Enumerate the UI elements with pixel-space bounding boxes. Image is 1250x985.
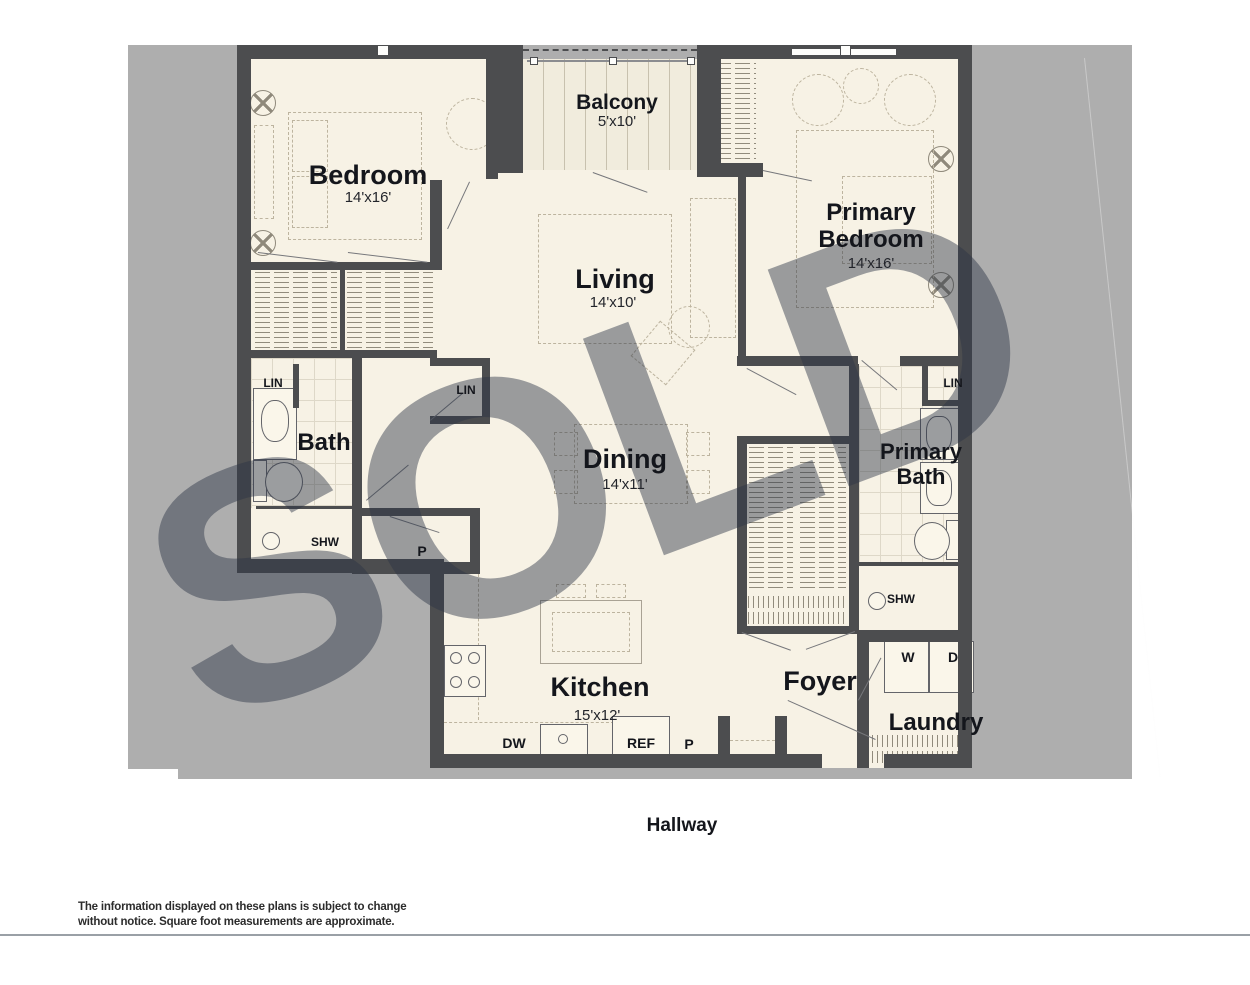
label-pantry: P xyxy=(417,544,426,560)
wall xyxy=(718,716,730,758)
wall xyxy=(237,45,503,59)
foyer-closet-shelf xyxy=(748,592,847,624)
floor-plan-page: SOLD Bedroom 14'x16' Balcony 5'x10' Livi… xyxy=(0,0,1250,985)
room-dims-bedroom: 14'x16' xyxy=(345,190,392,207)
room-label-laundry: Laundry xyxy=(889,710,984,737)
wall xyxy=(737,626,859,634)
room-label-kitchen: Kitchen xyxy=(550,672,649,702)
dresser xyxy=(254,125,274,219)
label-washer: W xyxy=(901,650,914,666)
table xyxy=(843,68,879,104)
chair xyxy=(884,74,936,126)
label-refrigerator: REF xyxy=(627,736,655,752)
room-dims-balcony: 5'x10' xyxy=(598,114,636,131)
wall xyxy=(430,754,822,768)
hallway-label: Hallway xyxy=(647,815,718,836)
rail-post xyxy=(609,57,617,65)
bedroom-closet-left xyxy=(255,270,337,348)
wall xyxy=(486,59,498,179)
wall xyxy=(857,630,972,642)
shower-glass xyxy=(859,562,959,566)
label-pantry: P xyxy=(684,737,693,753)
room-label-bath: Bath xyxy=(297,430,350,457)
label-linen: LIN xyxy=(456,384,475,397)
room-label-living: Living xyxy=(575,264,655,294)
label-dryer: D xyxy=(948,650,958,666)
label-linen: LIN xyxy=(943,377,962,390)
room-label-dining: Dining xyxy=(583,444,667,474)
wall xyxy=(497,45,523,173)
wall xyxy=(340,266,345,354)
room-label-primary-bedroom: Primary Bedroom xyxy=(796,200,946,254)
room-label-bedroom: Bedroom xyxy=(309,160,428,190)
window-tick xyxy=(840,45,851,56)
room-dims-living: 14'x10' xyxy=(590,295,637,312)
rail-post xyxy=(687,57,695,65)
footer-divider xyxy=(0,934,1250,936)
wall xyxy=(697,163,763,177)
room-dims-primary-bedroom: 14'x16' xyxy=(848,256,895,273)
rail-post xyxy=(530,57,538,65)
window-tick xyxy=(377,45,389,56)
label-shower: SHW xyxy=(887,593,915,606)
ceiling-fixture xyxy=(250,90,276,116)
disclaimer-text: The information displayed on these plans… xyxy=(78,900,430,930)
room-label-foyer: Foyer xyxy=(783,666,857,696)
label-dishwasher: DW xyxy=(502,736,525,752)
entry-niche-line xyxy=(730,740,775,741)
wall xyxy=(775,716,787,758)
balcony-rail-dashed xyxy=(523,49,697,51)
room-label-balcony: Balcony xyxy=(576,91,658,115)
label-shower: SHW xyxy=(311,536,339,549)
primary-closet xyxy=(716,62,756,164)
chair xyxy=(792,74,844,126)
room-dims-dining: 14'x11' xyxy=(602,477,647,494)
wall xyxy=(708,59,716,177)
wall xyxy=(430,180,442,270)
label-linen: LIN xyxy=(263,377,282,390)
room-dims-kitchen: 15'x12' xyxy=(574,708,621,725)
shower-head xyxy=(868,592,886,610)
faucet xyxy=(558,734,568,744)
room-label-primary-bath: Primary Bath xyxy=(866,440,976,489)
